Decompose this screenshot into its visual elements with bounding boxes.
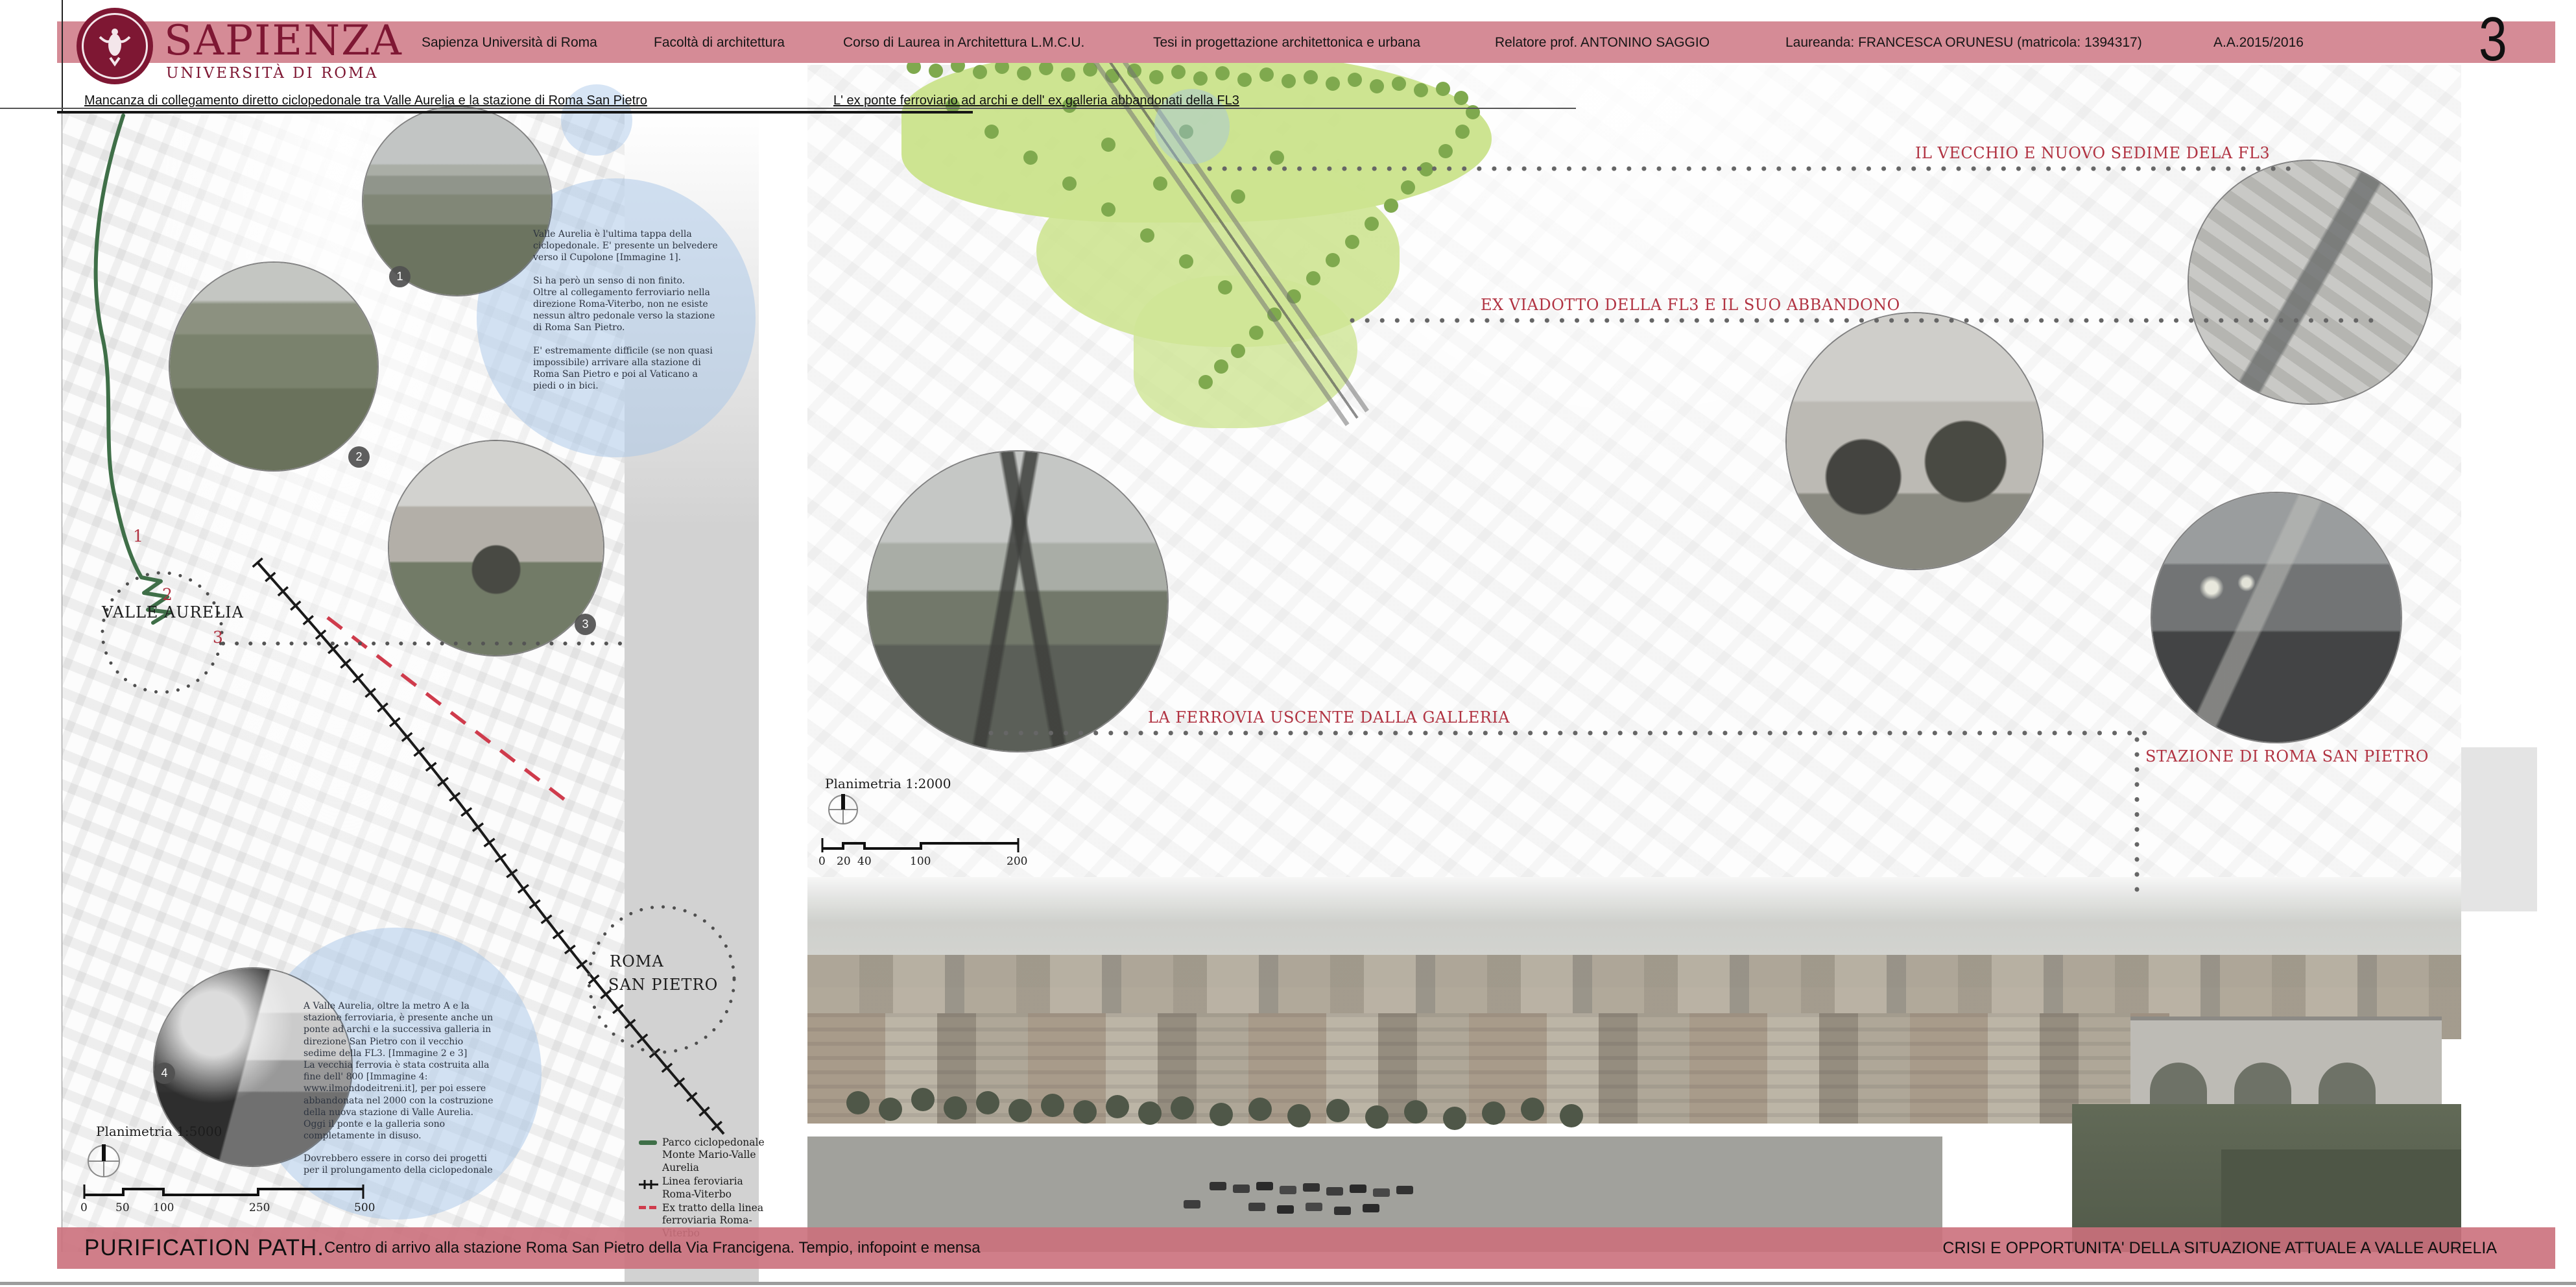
scale-tick: 250 xyxy=(249,1201,270,1214)
footer-title: PURIFICATION PATH. xyxy=(84,1235,324,1261)
plan-label-right: Planimetria 1:2000 xyxy=(825,776,951,791)
brand-wordmark: SAPIENZA xyxy=(164,17,403,65)
note1-paragraph: Oltre al collegamento ferroviario nella … xyxy=(533,287,721,334)
label-san-pietro: SAN PIETRO xyxy=(608,976,718,994)
scale-bar-left xyxy=(84,1189,363,1195)
cycle-path-line xyxy=(96,115,170,623)
note2-paragraph: A Valle Aurelia, oltre la metro A e la s… xyxy=(304,1000,498,1059)
label-roma: ROMA xyxy=(610,952,664,970)
compass-icon-left xyxy=(88,1144,119,1177)
scale-tick: 200 xyxy=(1007,855,1027,868)
legend-label: Parco ciclopedonale Monte Mario-Valle Au… xyxy=(662,1137,778,1174)
header-item-course: Corso di Laurea in Architettura L.M.C.U. xyxy=(843,35,1084,51)
route-marker-2: 2 xyxy=(162,585,173,604)
annotation-galleria: LA FERROVIA USCENTE DALLA GALLERIA xyxy=(1148,708,1510,727)
header-item-student: Laureanda: FRANCESCA ORUNESU (matricola:… xyxy=(1785,35,2142,51)
scale-tick: 100 xyxy=(153,1201,174,1214)
red-dash-icon xyxy=(639,1202,662,1209)
plan-label-left: Planimetria 1:5000 xyxy=(96,1124,222,1139)
green-line-icon xyxy=(639,1137,662,1145)
caption-right: L' ex ponte ferroviario ad archi e dell'… xyxy=(833,93,1239,108)
caption-left: Mancanza di collegamento diretto ciclope… xyxy=(84,93,647,108)
scale-tick: 40 xyxy=(857,855,872,868)
legend-item-railway: Linea feroviaria Roma-Viterbo xyxy=(639,1175,778,1201)
annotation-sedime: IL VECCHIO E NUOVO SEDIME DELA FL3 xyxy=(1915,144,2270,162)
sapienza-logo-ring xyxy=(82,13,148,79)
map-legend: Parco ciclopedonale Monte Mario-Valle Au… xyxy=(639,1137,778,1241)
photo-badge-4: 4 xyxy=(154,1063,175,1084)
photo-badge-3: 3 xyxy=(575,614,596,635)
scale-tick: 100 xyxy=(910,855,931,868)
footer-bar: PURIFICATION PATH. Centro di arrivo alla… xyxy=(57,1227,2555,1269)
scale-tick: 50 xyxy=(115,1201,130,1214)
scale-tick: 0 xyxy=(818,855,826,868)
photo-badge-2: 2 xyxy=(348,446,370,468)
sapienza-logo xyxy=(77,8,153,84)
note-text-2: A Valle Aurelia, oltre la metro A e la s… xyxy=(304,1000,498,1188)
bottom-rule xyxy=(0,1282,2576,1285)
ex-fl3-dashed-line xyxy=(328,618,571,804)
header-item-university: Sapienza Università di Roma xyxy=(422,35,597,51)
header-item-thesis: Tesi in progettazione architettonica e u… xyxy=(1153,35,1420,51)
note1-paragraph: Si ha però un senso di non finito. xyxy=(533,275,721,287)
legend-item-cycle-park: Parco ciclopedonale Monte Mario-Valle Au… xyxy=(639,1137,778,1174)
caption-rule-thin xyxy=(0,108,1576,109)
header-left-rule xyxy=(62,0,63,112)
scale-tick: 0 xyxy=(80,1201,88,1214)
scale-bar-right xyxy=(822,843,1018,848)
scale-tick: 500 xyxy=(354,1201,375,1214)
footer-subtitle: Centro di arrivo alla stazione Roma San … xyxy=(324,1239,981,1257)
note2-paragraph: Oggi il ponte e la galleria sono complet… xyxy=(304,1118,498,1142)
photo-badge-1: 1 xyxy=(389,266,411,287)
label-valle-aurelia: VALLE AURELIA xyxy=(102,603,244,621)
header-item-year: A.A.2015/2016 xyxy=(2213,35,2304,51)
legend-label: Linea feroviaria Roma-Viterbo xyxy=(662,1175,778,1201)
page-number: 3 xyxy=(2479,4,2507,75)
annotation-stazione: STAZIONE DI ROMA SAN PIETRO xyxy=(2145,747,2429,765)
railway-line-icon xyxy=(639,1175,662,1193)
note1-paragraph: Valle Aurelia è l'ultima tappa della cic… xyxy=(533,228,721,264)
caption-rule-thick xyxy=(57,111,973,114)
note-text-1: Valle Aurelia è l'ultima tappa della cic… xyxy=(533,228,721,403)
note2-paragraph: La vecchia ferrovia è stata costruita al… xyxy=(304,1059,498,1118)
thesis-board: SAPIENZA UNIVERSITÀ DI ROMA Sapienza Uni… xyxy=(0,0,2576,1287)
header-item-advisor: Relatore prof. ANTONINO SAGGIO xyxy=(1495,35,1710,51)
brand-subtitle: UNIVERSITÀ DI ROMA xyxy=(166,65,378,82)
footer-right-text: CRISI E OPPORTUNITA' DELLA SITUAZIONE AT… xyxy=(1942,1239,2497,1258)
note1-paragraph: E' estremamente difficile (se non quasi … xyxy=(533,345,721,392)
compass-icon-right xyxy=(829,794,857,824)
note2-paragraph: Dovrebbero essere in corso dei progetti … xyxy=(304,1153,498,1176)
route-marker-3: 3 xyxy=(213,628,223,647)
annotation-viadotto: EX VIADOTTO DELLA FL3 E IL SUO ABBANDONO xyxy=(1481,296,1900,314)
scale-tick: 20 xyxy=(837,855,851,868)
eagle-icon xyxy=(97,25,132,67)
header-item-faculty: Facoltà di architettura xyxy=(654,35,785,51)
route-marker-1: 1 xyxy=(133,527,143,546)
